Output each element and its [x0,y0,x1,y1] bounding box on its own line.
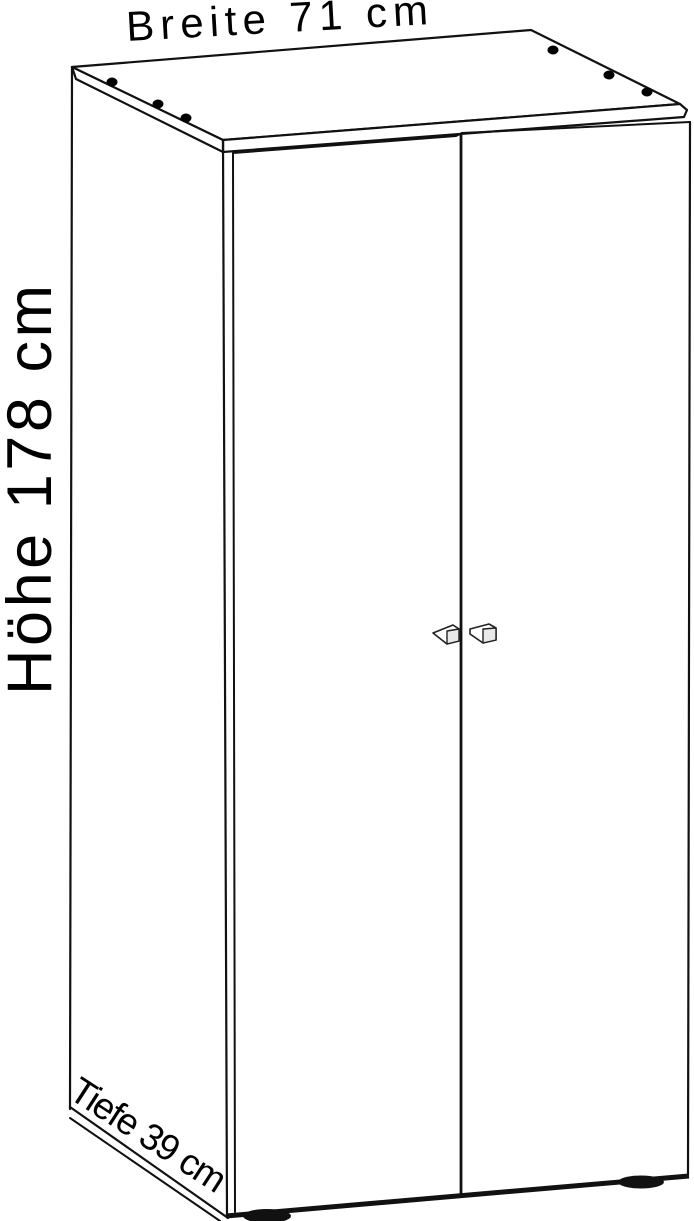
base [226,1176,689,1221]
left-handle-front-face [447,629,459,644]
wardrobe-dimension-diagram: Breite 71 cm Höhe 178 cm Tiefe 39 cm [0,0,694,1221]
right-door-handle [470,624,496,643]
front-right-edge [688,122,690,1175]
cam-hole-dot [642,88,653,97]
wardrobe-line-drawing: Breite 71 cm Höhe 178 cm Tiefe 39 cm [0,0,694,1221]
cam-hole-dot [107,78,118,87]
depth-label: Tiefe 39 cm [63,1069,235,1200]
right-foot [618,1176,664,1189]
right-handle-front-face [483,628,496,643]
cam-hole-dot [604,71,615,80]
cam-hole-dot [548,46,559,55]
rear-left-edge [70,67,72,1109]
cam-hole-dot [153,100,164,109]
front-frame [223,122,690,1216]
cam-hole-dot [181,114,192,123]
left-side-panel [70,67,228,1221]
front-left-edge [223,140,227,1216]
top-panel [72,30,687,152]
doors [233,122,690,1212]
left-door-handle [433,625,459,644]
left-door-left-edge [233,153,235,1212]
height-label: Höhe 178 cm [0,285,65,695]
